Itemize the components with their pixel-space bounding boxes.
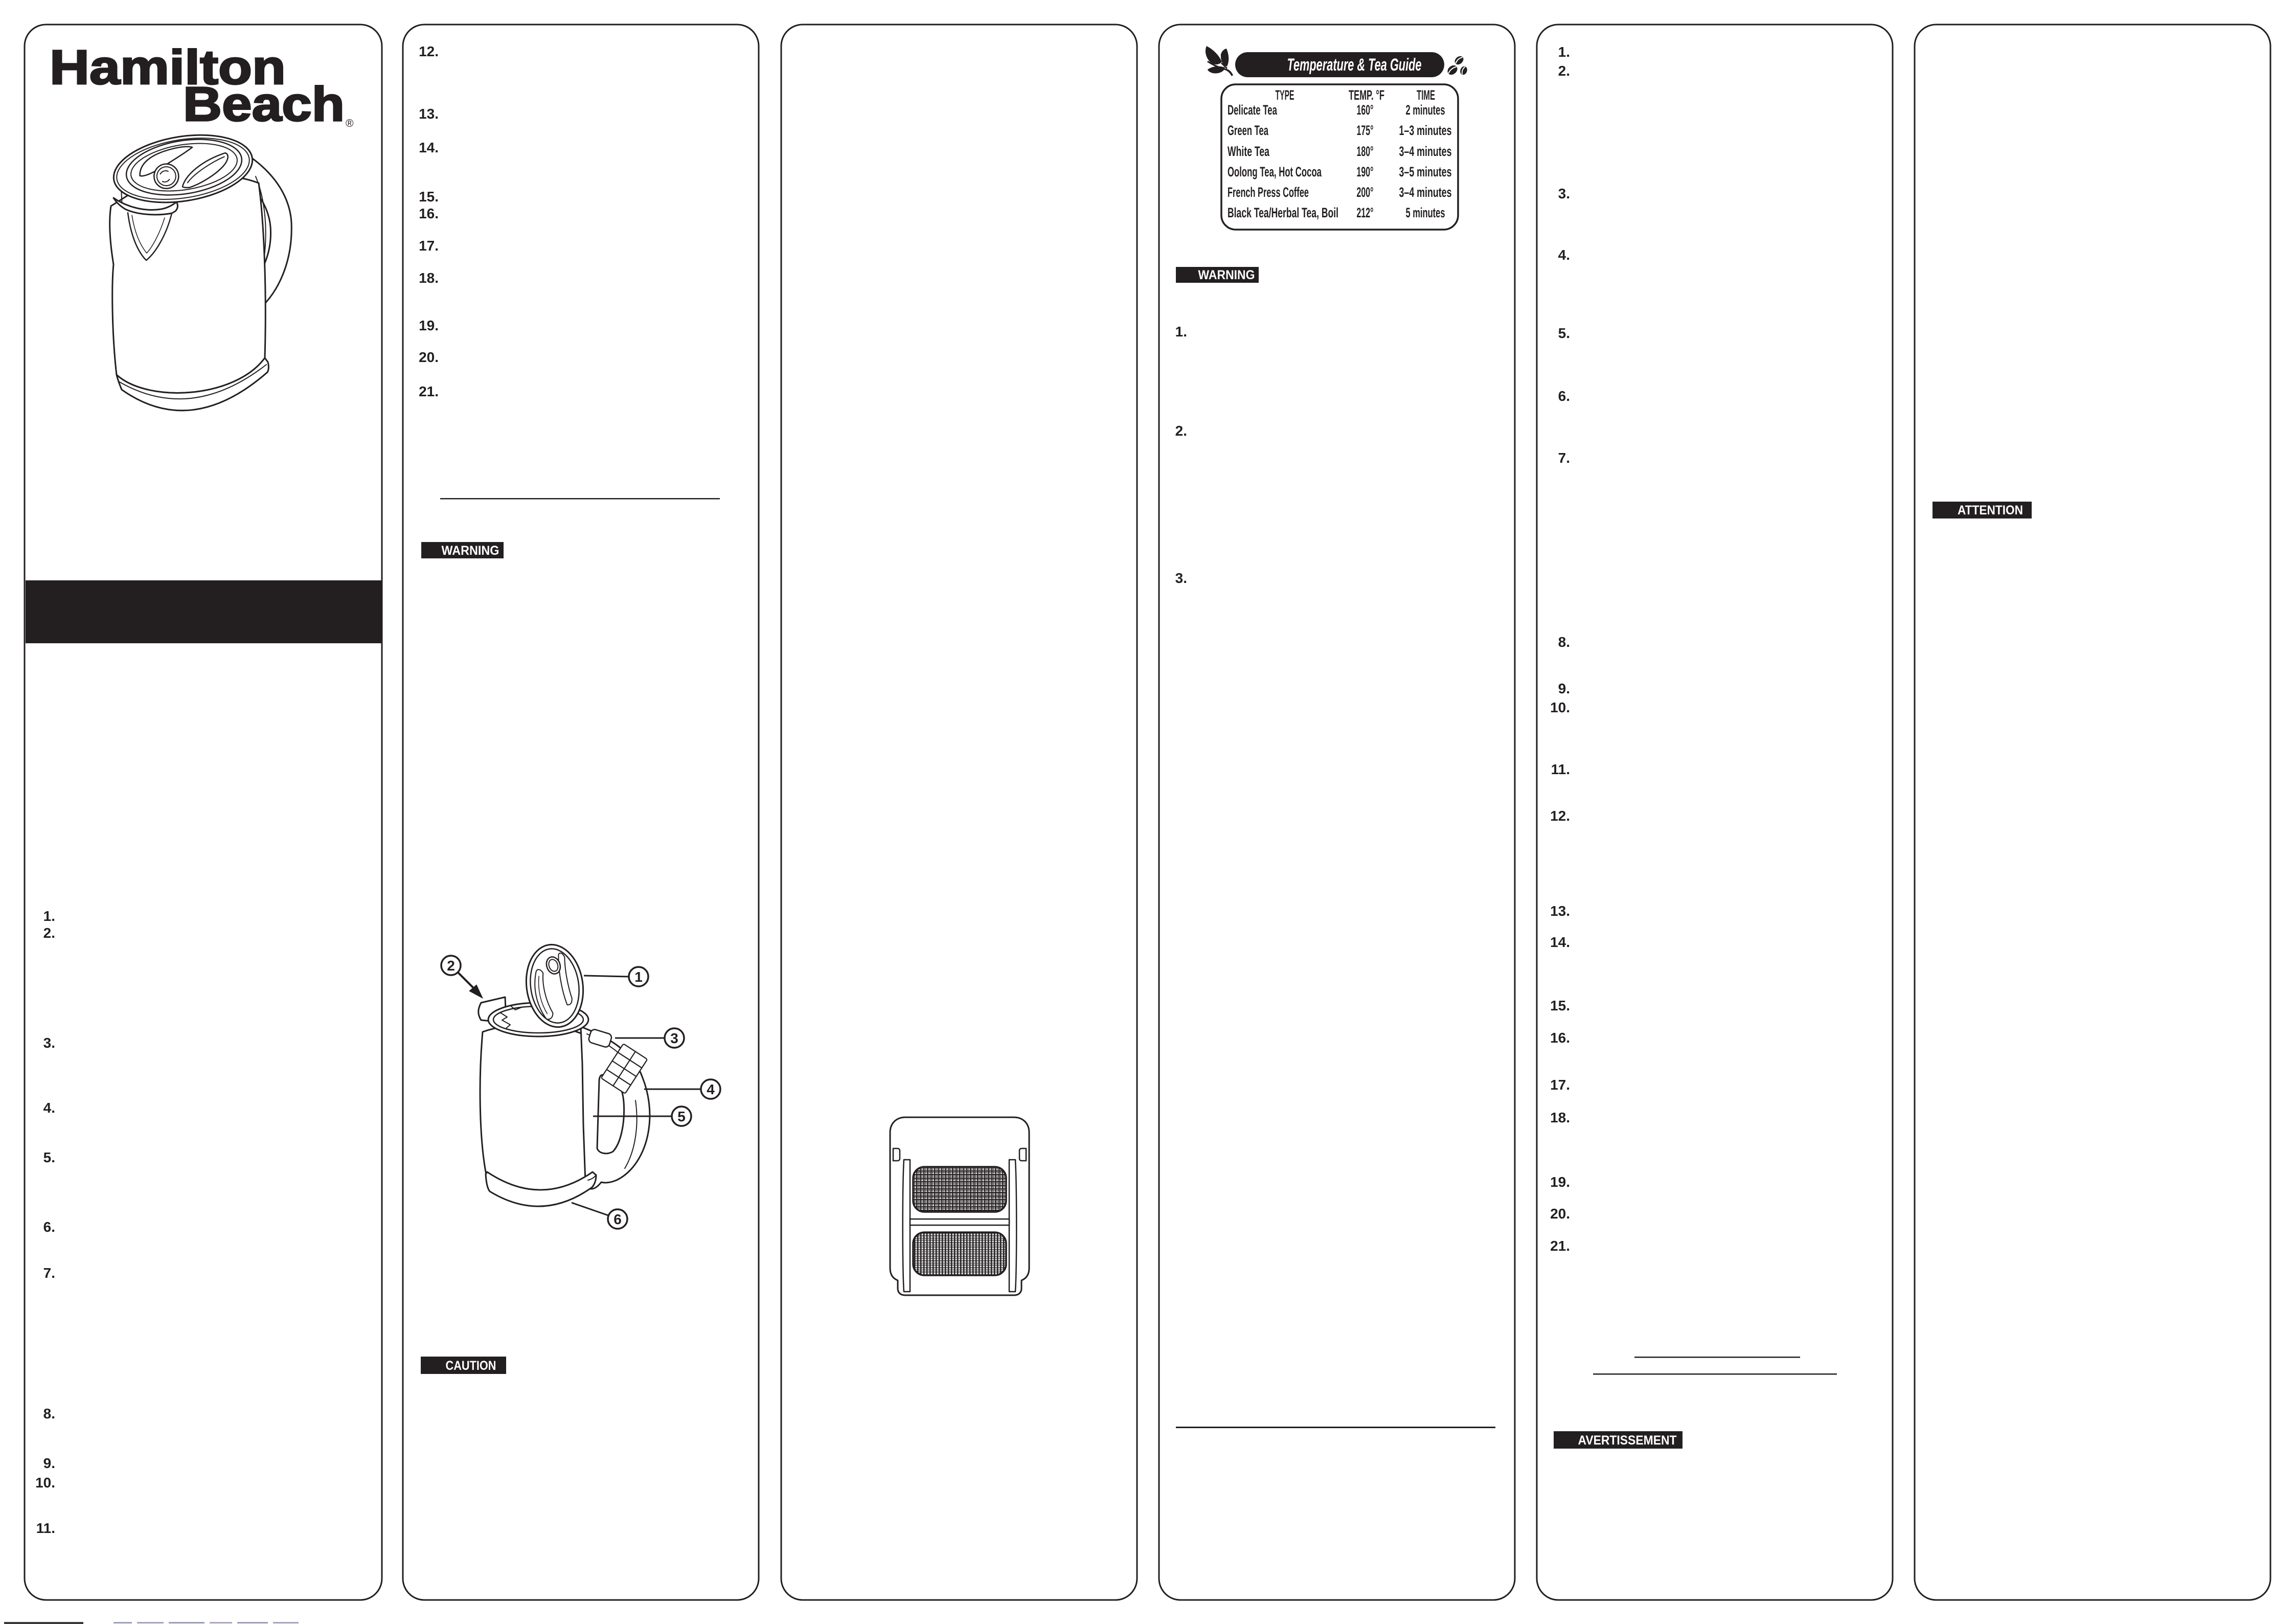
svg-text:17.: 17.: [419, 238, 439, 254]
svg-text:5 minutes: 5 minutes: [1406, 205, 1445, 220]
svg-text:Green Tea: Green Tea: [1227, 123, 1269, 138]
svg-text:6: 6: [613, 1211, 622, 1227]
svg-text:8.: 8.: [1558, 634, 1570, 650]
svg-text:1.: 1.: [1558, 44, 1570, 60]
svg-text:19.: 19.: [1550, 1174, 1570, 1190]
svg-text:10.: 10.: [35, 1475, 55, 1491]
svg-text:11.: 11.: [36, 1520, 55, 1536]
svg-text:2.: 2.: [1558, 63, 1570, 79]
svg-text:3.: 3.: [43, 1035, 55, 1051]
svg-text:WARNING: WARNING: [1198, 268, 1255, 282]
svg-text:3–4 minutes: 3–4 minutes: [1399, 185, 1452, 200]
svg-text:12.: 12.: [419, 43, 439, 59]
svg-text:ATTENTION: ATTENTION: [1958, 503, 2023, 517]
svg-text:180°: 180°: [1357, 144, 1374, 159]
svg-text:WARNING: WARNING: [442, 544, 499, 558]
svg-text:212°: 212°: [1357, 205, 1374, 220]
svg-text:5.: 5.: [43, 1149, 55, 1165]
svg-text:1–3 minutes: 1–3 minutes: [1399, 123, 1452, 138]
svg-text:White Tea: White Tea: [1227, 144, 1270, 159]
svg-text:2 minutes: 2 minutes: [1406, 102, 1445, 118]
svg-text:TIME: TIME: [1417, 87, 1435, 103]
svg-text:4.: 4.: [43, 1100, 55, 1116]
svg-text:12.: 12.: [1550, 808, 1570, 824]
svg-text:Temperature & Tea Guide: Temperature & Tea Guide: [1287, 55, 1422, 75]
svg-text:2: 2: [447, 958, 455, 974]
svg-text:4.: 4.: [1558, 247, 1570, 263]
svg-text:®: ®: [346, 118, 354, 129]
svg-text:190°: 190°: [1357, 164, 1374, 179]
svg-text:14.: 14.: [1550, 934, 1570, 950]
svg-text:1: 1: [634, 969, 643, 985]
svg-text:20.: 20.: [1550, 1206, 1570, 1222]
svg-text:3: 3: [670, 1030, 678, 1046]
svg-text:1.: 1.: [43, 908, 55, 924]
svg-text:160°: 160°: [1357, 102, 1374, 118]
svg-text:Black Tea/Herbal Tea, Boil: Black Tea/Herbal Tea, Boil: [1227, 205, 1338, 220]
svg-text:Oolong Tea, Hot Cocoa: Oolong Tea, Hot Cocoa: [1227, 164, 1322, 179]
svg-text:18.: 18.: [1550, 1110, 1570, 1125]
svg-text:13.: 13.: [419, 106, 439, 122]
svg-text:8.: 8.: [43, 1406, 55, 1422]
svg-text:3–4 minutes: 3–4 minutes: [1399, 144, 1452, 159]
svg-text:16.: 16.: [1550, 1030, 1570, 1046]
svg-text:TYPE: TYPE: [1276, 87, 1294, 103]
svg-text:3.: 3.: [1558, 186, 1570, 201]
svg-text:5.: 5.: [1558, 325, 1570, 341]
svg-text:10.: 10.: [1550, 700, 1570, 715]
svg-text:15.: 15.: [419, 189, 439, 205]
svg-text:19.: 19.: [419, 318, 439, 333]
svg-text:6.: 6.: [1558, 388, 1570, 404]
svg-text:17.: 17.: [1550, 1077, 1570, 1093]
svg-text:1.: 1.: [1175, 324, 1187, 340]
svg-text:9.: 9.: [1558, 681, 1570, 696]
svg-text:11.: 11.: [1551, 761, 1570, 777]
svg-text:21.: 21.: [419, 384, 439, 399]
svg-text:CAUTION: CAUTION: [446, 1359, 496, 1373]
svg-text:18.: 18.: [419, 270, 439, 286]
svg-text:13.: 13.: [1550, 903, 1570, 919]
svg-text:7.: 7.: [1558, 450, 1570, 466]
svg-text:7.: 7.: [43, 1265, 55, 1281]
svg-text:TEMP. °F: TEMP. °F: [1349, 87, 1384, 103]
svg-text:3–5 minutes: 3–5 minutes: [1399, 164, 1452, 179]
svg-text:14.: 14.: [419, 140, 439, 155]
svg-text:4: 4: [707, 1081, 715, 1097]
svg-text:French Press Coffee: French Press Coffee: [1227, 185, 1309, 200]
svg-text:16.: 16.: [419, 206, 439, 221]
svg-text:175°: 175°: [1357, 123, 1374, 138]
svg-text:2.: 2.: [43, 925, 55, 941]
svg-text:5: 5: [677, 1109, 686, 1124]
svg-text:15.: 15.: [1550, 998, 1570, 1013]
svg-text:Delicate Tea: Delicate Tea: [1227, 102, 1278, 118]
svg-text:9.: 9.: [43, 1455, 55, 1471]
svg-text:Beach: Beach: [183, 77, 345, 131]
svg-text:200°: 200°: [1357, 185, 1374, 200]
svg-text:6.: 6.: [43, 1219, 55, 1235]
svg-text:2.: 2.: [1175, 423, 1187, 439]
svg-text:20.: 20.: [419, 349, 439, 365]
svg-text:21.: 21.: [1550, 1238, 1570, 1254]
svg-text:3.: 3.: [1175, 570, 1187, 586]
svg-text:AVERTISSEMENT: AVERTISSEMENT: [1578, 1433, 1677, 1448]
